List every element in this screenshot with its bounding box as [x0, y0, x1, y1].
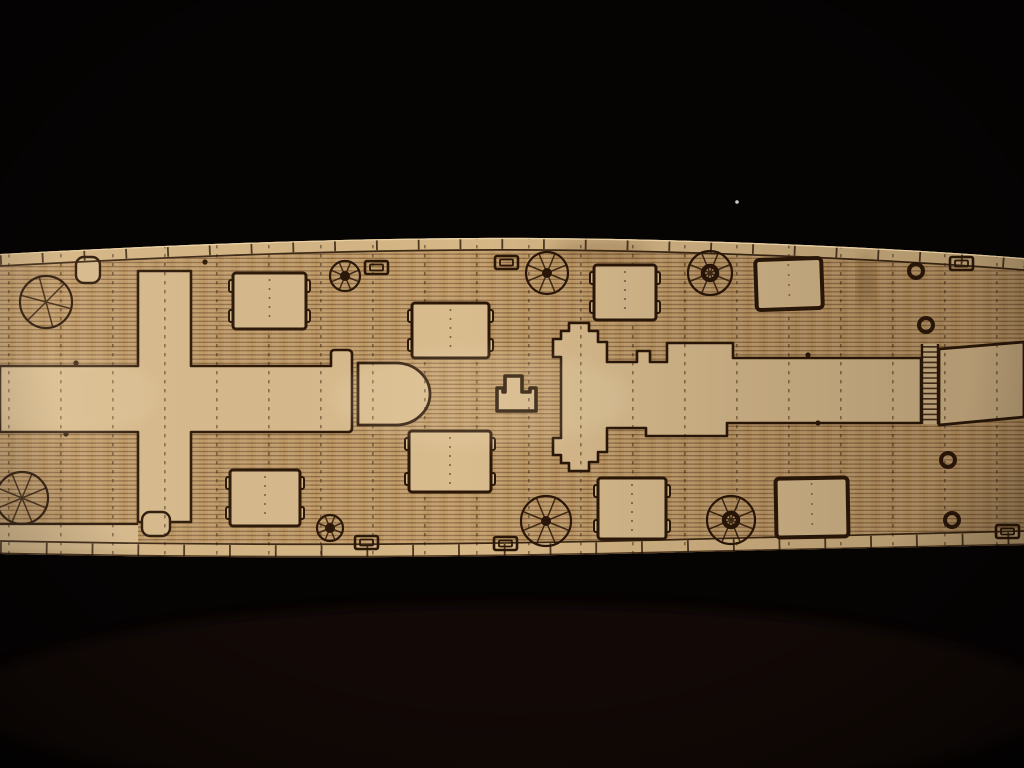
photo-vignette	[0, 0, 1024, 768]
photo-stage	[0, 0, 1024, 768]
photo-canvas	[0, 0, 1024, 768]
